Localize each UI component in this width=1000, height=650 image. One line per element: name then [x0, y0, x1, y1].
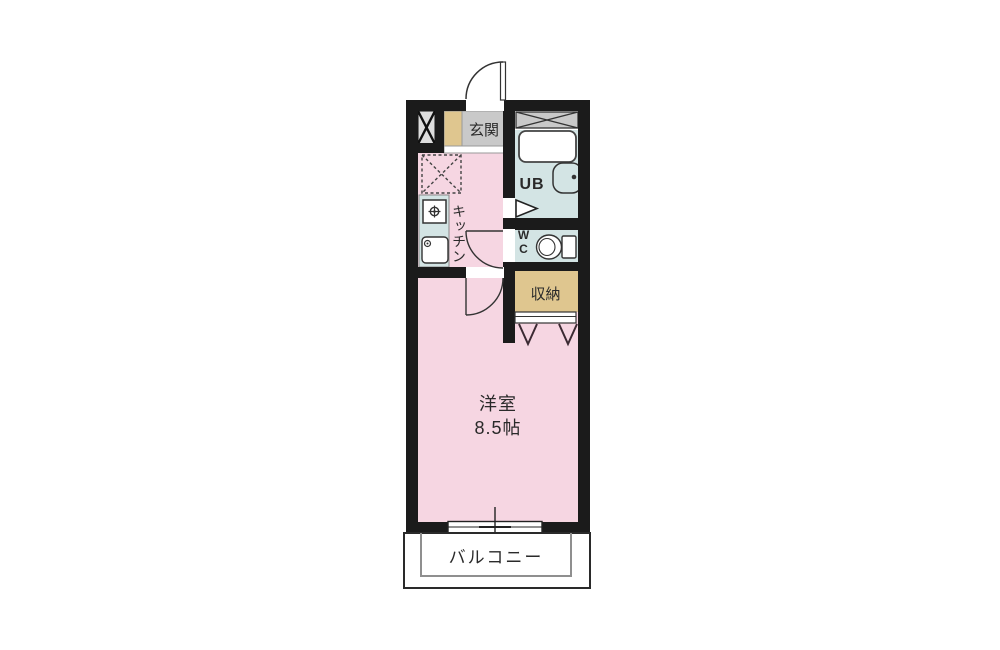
pipe-space-icon: [418, 111, 435, 144]
storage-label: 収納: [515, 283, 576, 304]
room-door-opening: [466, 267, 504, 278]
wc-label: W C: [515, 228, 532, 257]
stove-icon: [423, 200, 446, 223]
main-room-label: 洋室 8.5帖: [448, 392, 548, 441]
entrance-label: 玄関: [462, 119, 506, 140]
wall-left: [406, 100, 418, 533]
wall-wc-storage: [503, 262, 590, 271]
main-room-name: 洋室: [448, 392, 548, 416]
hatched-box-icon: [516, 112, 578, 128]
floorplan-canvas: 玄関 UB W C キッチン 収納 洋室 8.5帖 バルコニー: [0, 0, 1000, 650]
entrance-door-icon: [466, 62, 506, 100]
bath-door-opening: [503, 198, 515, 218]
main-room-size: 8.5帖: [448, 416, 548, 440]
sink-icon: [422, 237, 448, 263]
wall-right: [578, 100, 590, 533]
toilet-icon: [537, 235, 577, 259]
entrance-threshold: [444, 146, 506, 153]
entrance-door-opening: [466, 100, 504, 111]
wc-label-line2: C: [515, 242, 532, 256]
unit-bath-label: UB: [515, 176, 549, 194]
balcony-label: バルコニー: [431, 543, 561, 568]
wc-door-opening: [503, 229, 515, 262]
shoe-cabinet: [444, 111, 462, 148]
wc-label-line1: W: [515, 228, 532, 242]
wall-stub-ps: [406, 143, 444, 153]
bathtub-icon: [519, 131, 576, 162]
kitchen-label: キッチン: [450, 196, 468, 272]
closet-track: [515, 312, 576, 323]
